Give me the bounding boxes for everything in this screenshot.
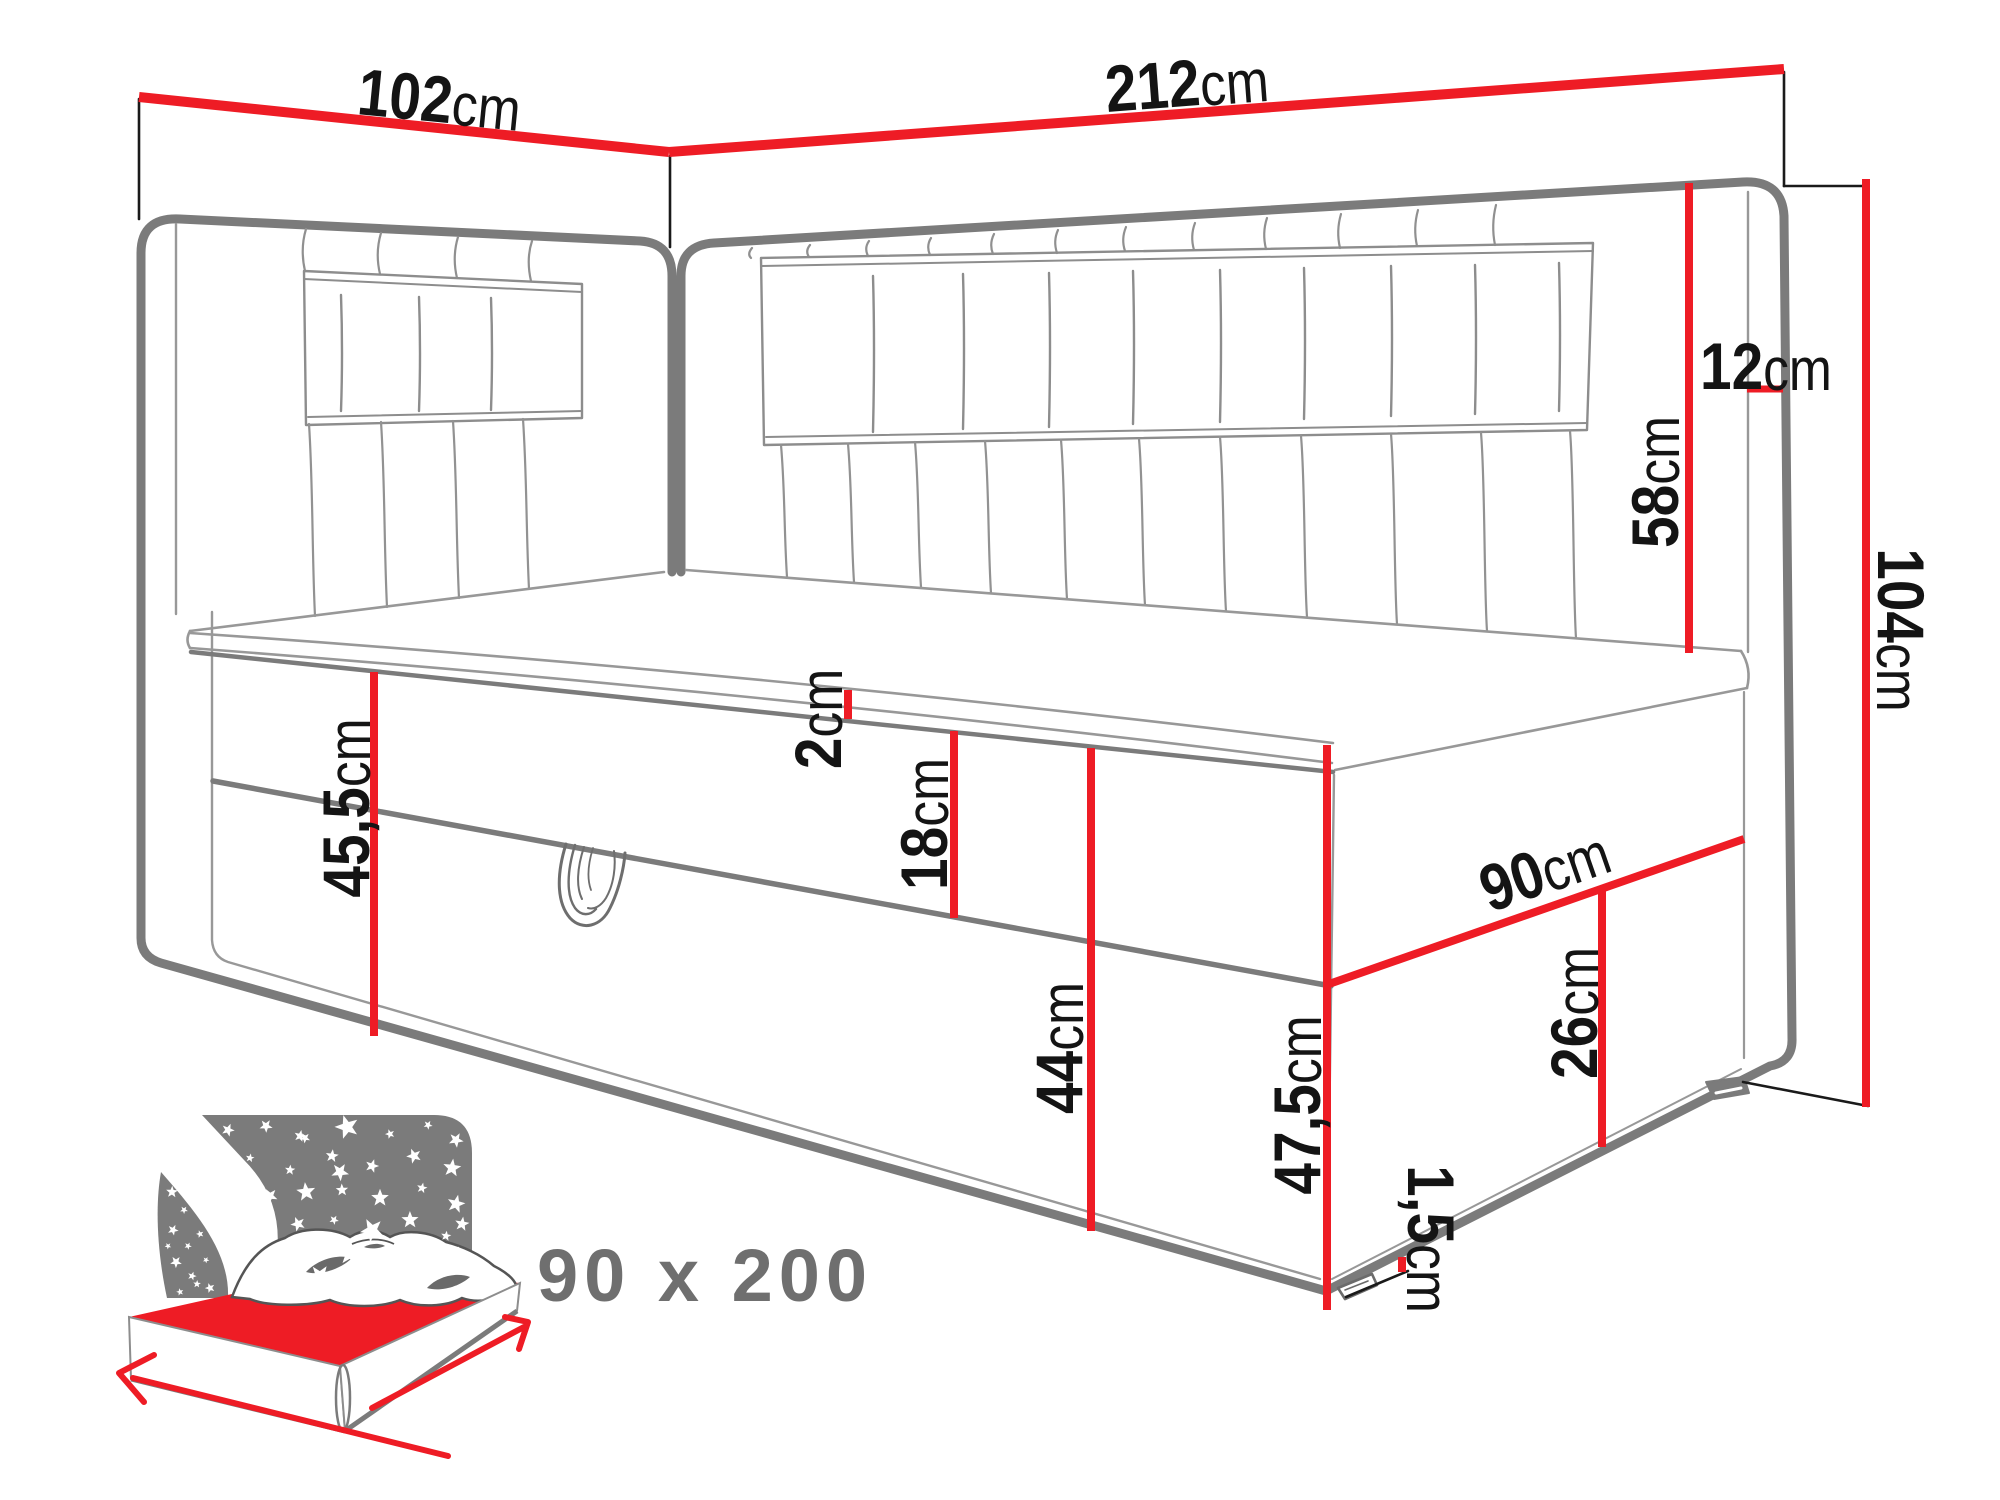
svg-text:26cm: 26cm (1538, 947, 1612, 1079)
svg-text:44cm: 44cm (1023, 982, 1097, 1114)
svg-text:212cm: 212cm (1103, 41, 1272, 127)
svg-text:90 x 200: 90 x 200 (537, 1234, 873, 1317)
svg-text:18cm: 18cm (888, 758, 962, 890)
svg-text:58cm: 58cm (1619, 416, 1693, 548)
svg-text:102cm: 102cm (355, 55, 525, 145)
svg-text:1,5cm: 1,5cm (1393, 1165, 1467, 1313)
svg-text:2cm: 2cm (782, 669, 856, 769)
svg-text:45,5cm: 45,5cm (310, 718, 384, 897)
svg-text:12cm: 12cm (1700, 330, 1832, 404)
svg-text:47,5cm: 47,5cm (1261, 1015, 1335, 1194)
svg-text:104cm: 104cm (1863, 548, 1937, 711)
